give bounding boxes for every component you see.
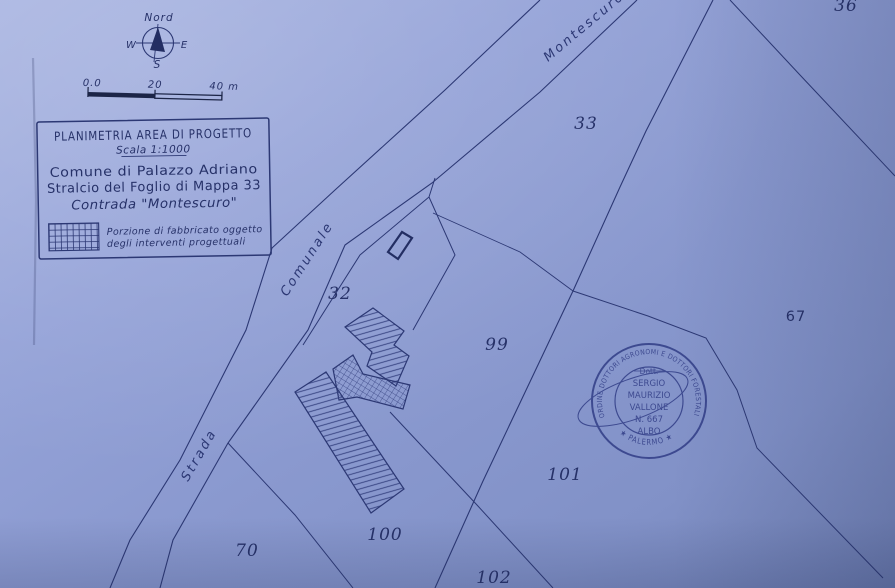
title-box-scale-note: Scala 1:1000 bbox=[116, 143, 191, 156]
stamp-line-number: N. 667 bbox=[635, 415, 663, 425]
scale-tick-0-label: 0.0 bbox=[83, 78, 102, 89]
parcel-label-32: 32 bbox=[328, 284, 352, 304]
title-box: PLANIMETRIA AREA DI PROGETTO Scala 1:100… bbox=[37, 118, 271, 259]
scale-tick-20-label: 20 bbox=[148, 80, 163, 91]
stamp-line-maurizio: MAURIZIO bbox=[628, 391, 671, 401]
parcel-label-100: 100 bbox=[367, 525, 402, 545]
parcel-label-101: 101 bbox=[547, 465, 582, 485]
scale-tick-40-label: 40 m bbox=[209, 81, 239, 93]
compass-north-label: Nord bbox=[144, 12, 173, 24]
site-plan-map: Nord W E S 0.0 20 40 m PLANIMETRIA AREA … bbox=[0, 0, 895, 588]
stamp-line-albo: ALBO bbox=[638, 427, 661, 437]
stamp-line-sergio: SERGIO bbox=[633, 379, 666, 389]
parcel-label-36: 36 bbox=[834, 0, 858, 16]
legend-hatch-swatch bbox=[49, 223, 99, 251]
photographed-site-plan: Nord W E S 0.0 20 40 m PLANIMETRIA AREA … bbox=[0, 0, 895, 588]
parcel-label-67: 67 bbox=[786, 309, 806, 325]
parcel-label-102: 102 bbox=[476, 568, 511, 588]
compass-east-label: E bbox=[181, 40, 188, 51]
parcel-label-33: 33 bbox=[574, 114, 598, 134]
parcel-label-70: 70 bbox=[235, 541, 259, 561]
compass-south-label: S bbox=[154, 59, 161, 71]
parcel-label-99: 99 bbox=[485, 335, 509, 355]
title-box-contrada: Contrada "Montescuro" bbox=[71, 196, 237, 214]
compass-west-label: W bbox=[126, 40, 137, 51]
